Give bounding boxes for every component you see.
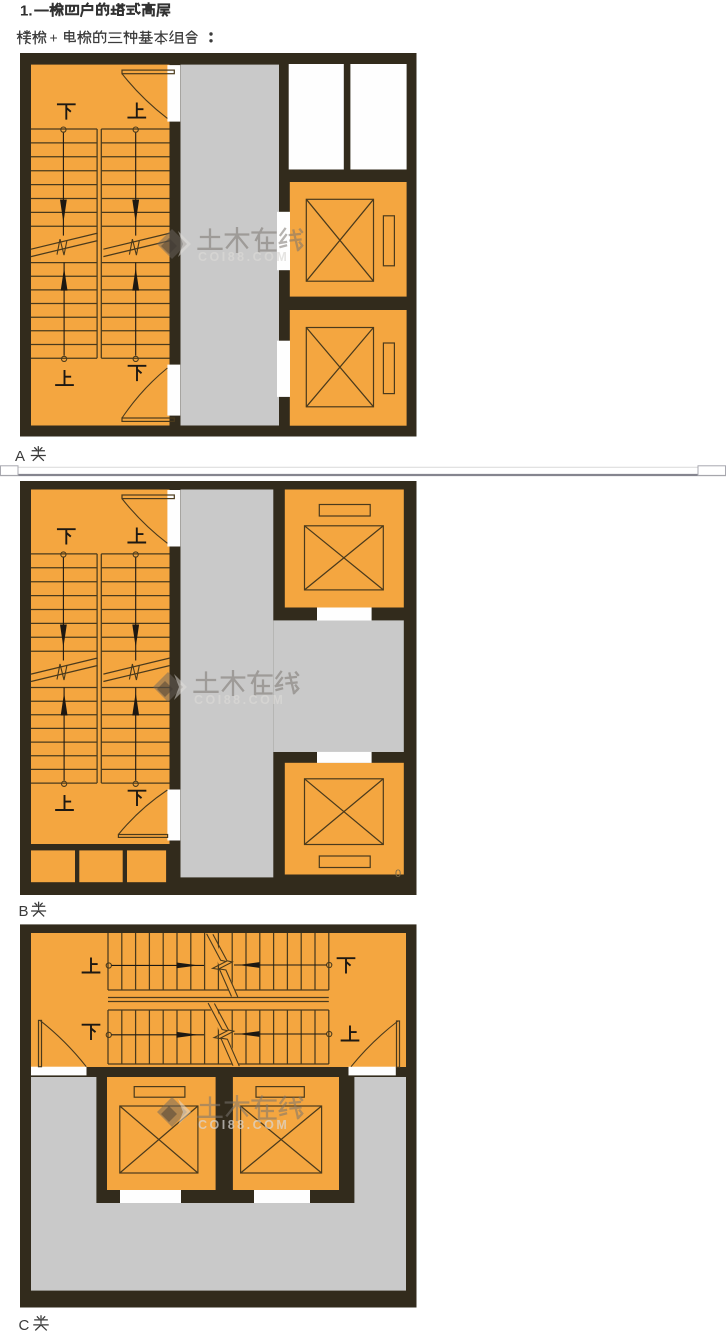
svg-text:+: + [50, 30, 58, 46]
svg-text:1.: 1. [20, 3, 33, 20]
svg-text:C: C [19, 1317, 30, 1334]
svg-text:0: 0 [395, 868, 401, 880]
svg-text:COI88.COM: COI88.COM [198, 1118, 289, 1132]
svg-text:COI88.COM: COI88.COM [194, 693, 285, 707]
svg-text:A: A [15, 448, 25, 465]
svg-text:COI88.COM: COI88.COM [198, 250, 289, 264]
svg-text:B: B [19, 903, 29, 920]
